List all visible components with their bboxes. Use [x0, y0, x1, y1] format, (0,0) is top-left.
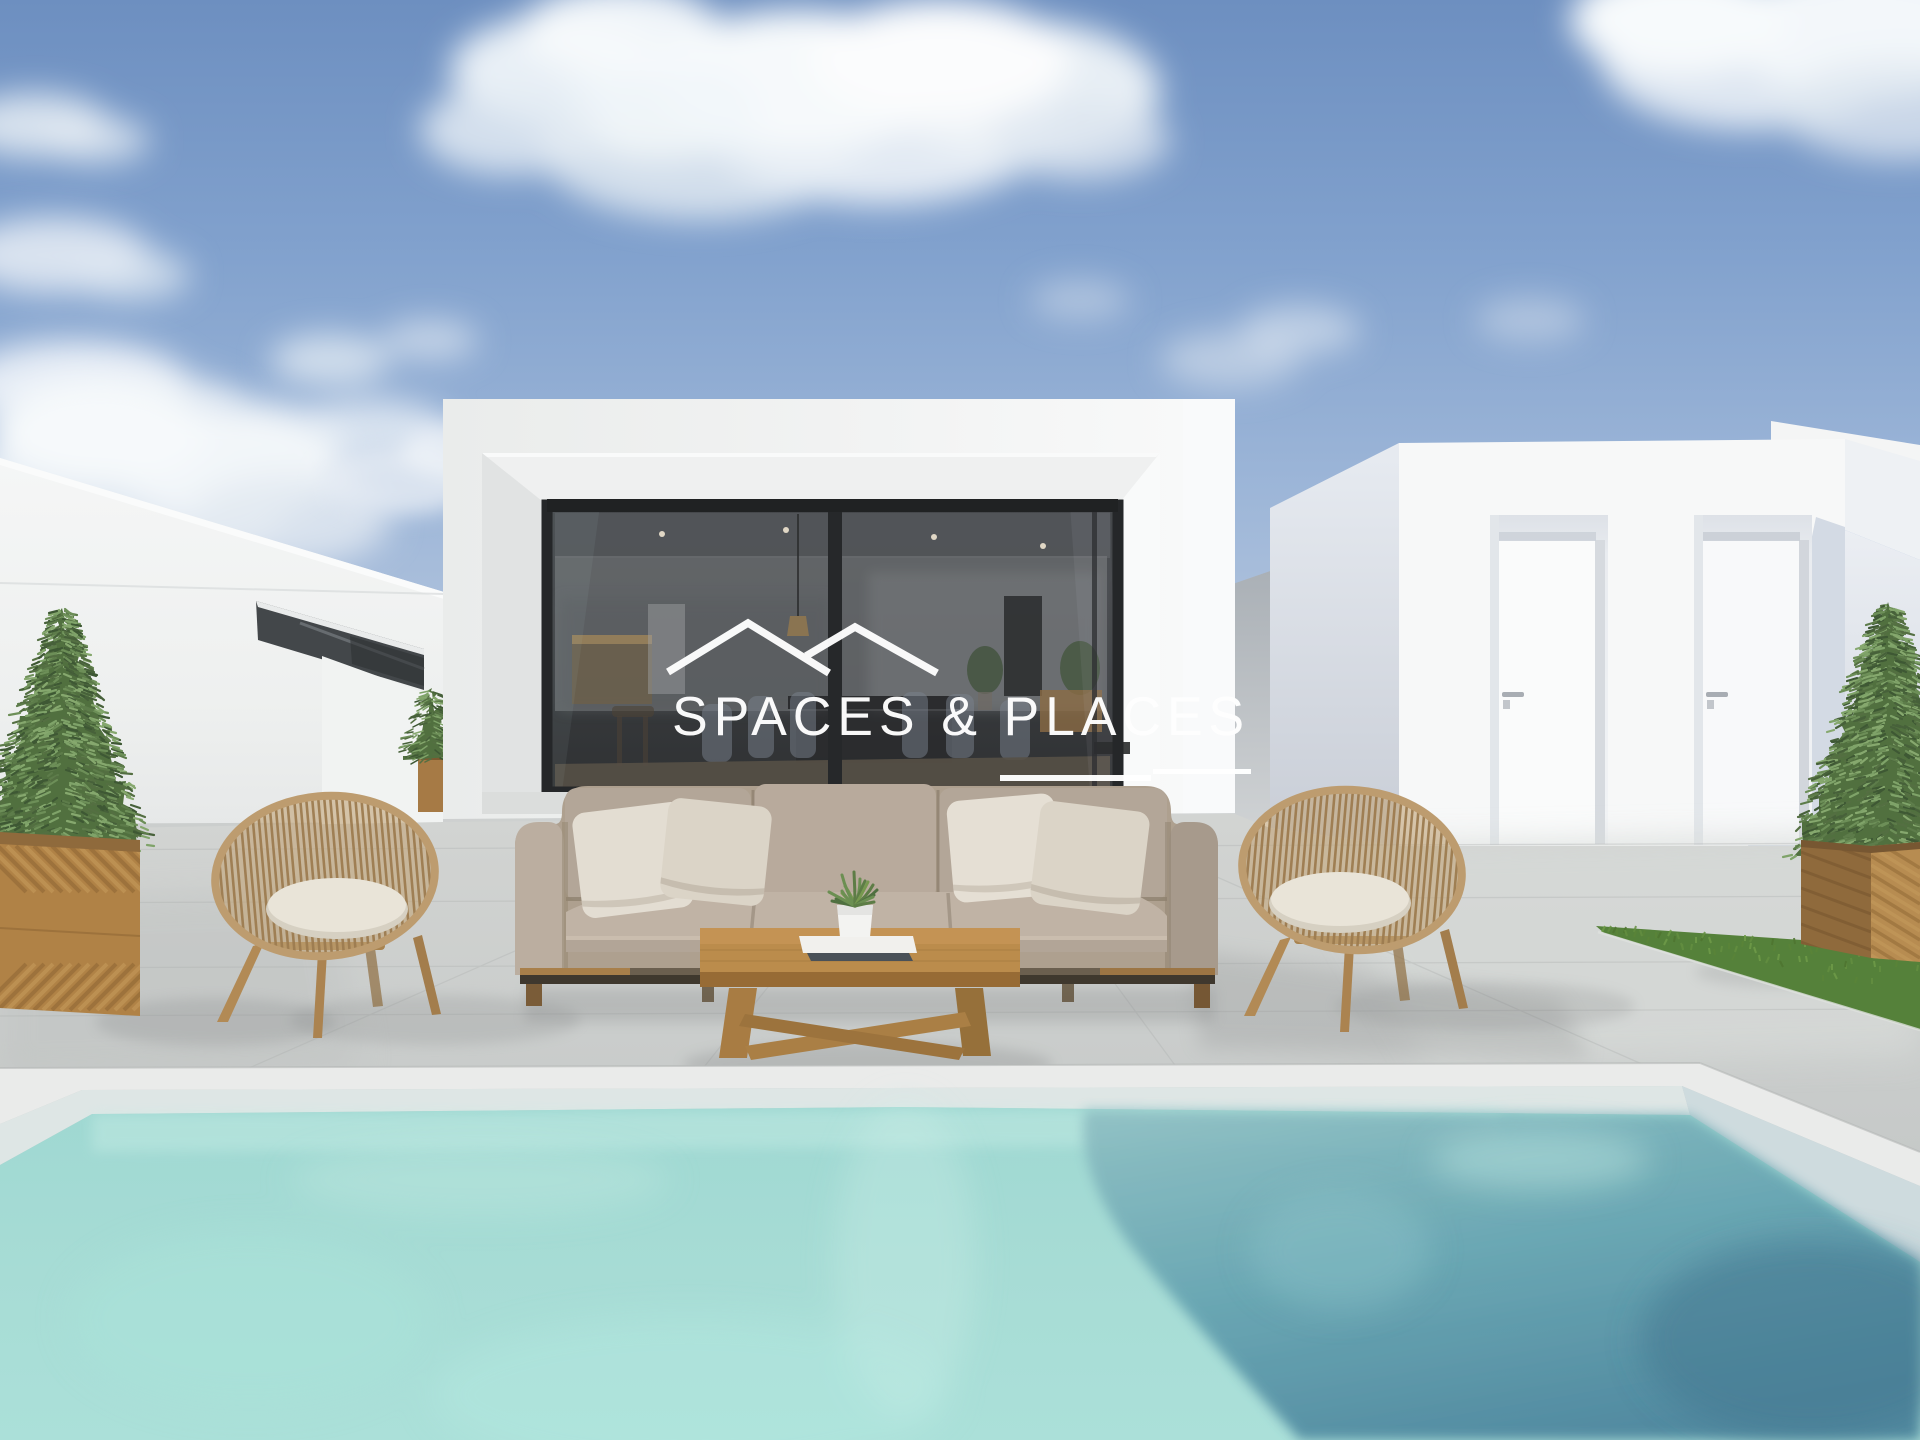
svg-text:SPACES & PLACES: SPACES & PLACES — [672, 685, 1250, 747]
